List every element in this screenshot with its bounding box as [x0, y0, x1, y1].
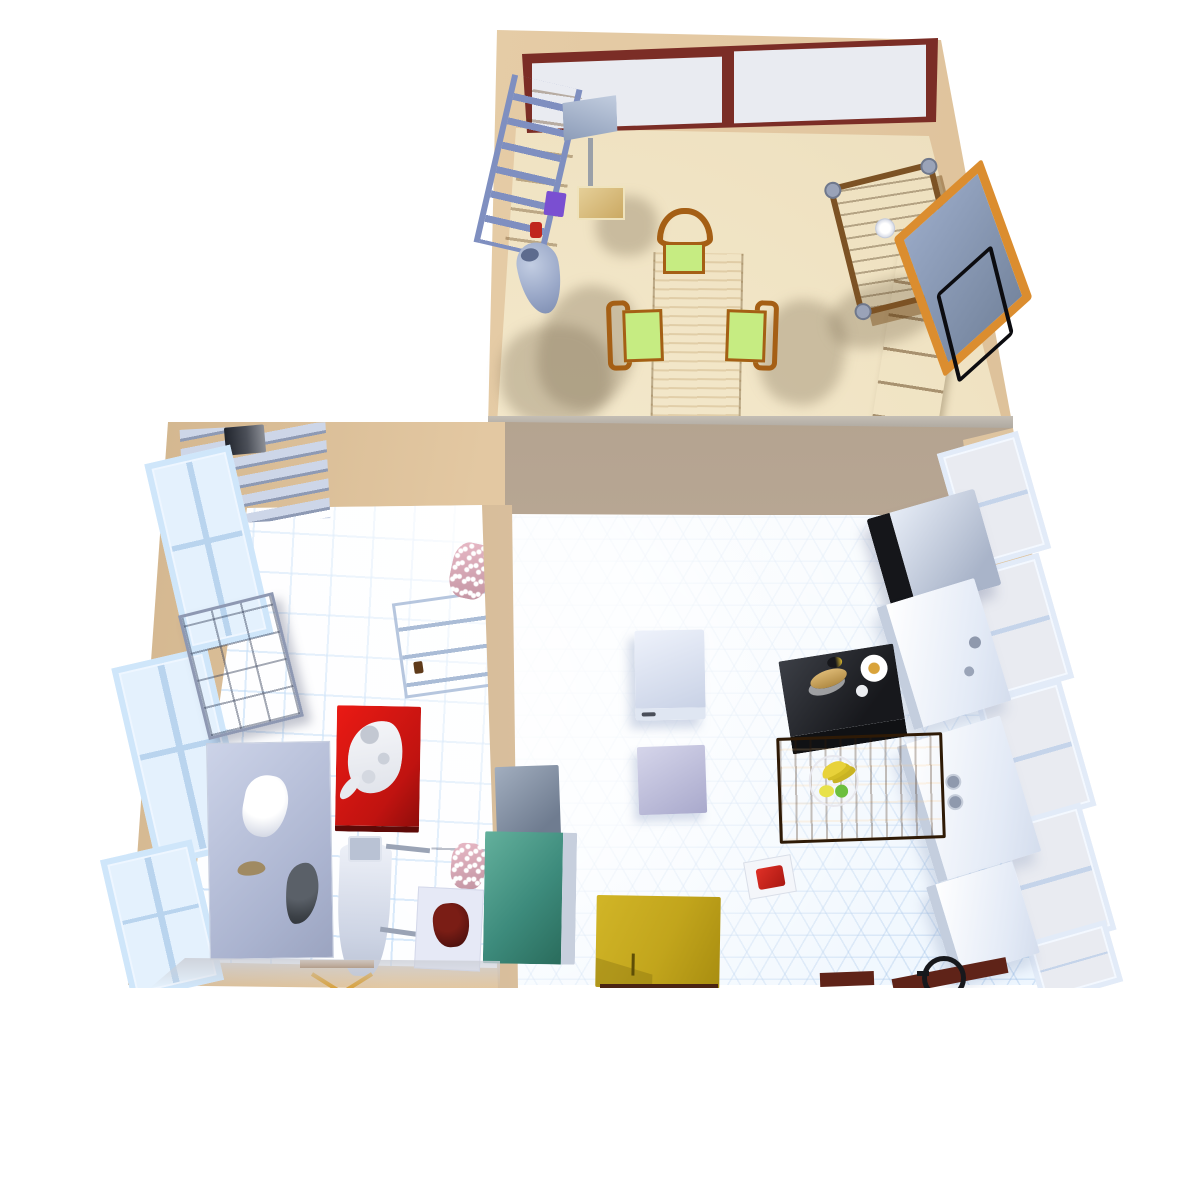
floor-lamp-base — [577, 186, 625, 220]
dining-chair-top[interactable] — [653, 208, 713, 272]
cut-wall-sliver — [150, 958, 500, 988]
stove-knob[interactable] — [943, 772, 963, 792]
table-slot — [631, 954, 634, 976]
red-cloth[interactable] — [755, 865, 785, 890]
towel[interactable] — [238, 771, 293, 840]
latch — [642, 712, 656, 716]
faucet[interactable] — [967, 635, 982, 650]
floor-shadow — [500, 325, 612, 425]
chair-cushion — [725, 309, 767, 362]
chair-cushion — [663, 242, 705, 274]
dining-chair-right[interactable] — [721, 295, 780, 373]
laundry-bag-lower[interactable] — [449, 842, 486, 890]
render-crop-area — [0, 988, 1200, 1200]
chair-cushion — [622, 309, 664, 362]
egg[interactable] — [855, 684, 869, 698]
bananas — [819, 757, 848, 780]
floor-lamp-pole — [588, 138, 593, 192]
wooden-island[interactable] — [776, 732, 946, 844]
kettle-spout — [917, 971, 929, 976]
dishwasher[interactable] — [634, 629, 706, 720]
leather-bag[interactable] — [431, 902, 471, 949]
bread-loaf[interactable] — [808, 664, 849, 692]
small-cap[interactable] — [826, 656, 843, 669]
teal-stove[interactable] — [483, 831, 577, 965]
iron-rest — [348, 836, 382, 862]
clothes-pile[interactable] — [282, 861, 321, 926]
fruit-bowl[interactable] — [808, 754, 860, 808]
cabinet-box[interactable] — [637, 745, 707, 815]
dining-chair-left[interactable] — [606, 295, 665, 373]
work-table[interactable] — [206, 741, 334, 960]
red-side-table[interactable] — [335, 705, 421, 832]
apartment-render — [0, 0, 1200, 1200]
cat-tail — [336, 773, 363, 802]
stove-knob[interactable] — [945, 792, 965, 812]
red-toy[interactable] — [530, 222, 542, 238]
yellow-table[interactable] — [595, 895, 721, 989]
vase-mouth — [520, 247, 540, 263]
cat[interactable] — [342, 715, 409, 798]
window-glass-right — [734, 45, 926, 124]
wine-glass[interactable] — [873, 216, 897, 240]
baseboard-strip — [820, 971, 874, 987]
purple-box[interactable] — [543, 191, 566, 218]
green-apple — [835, 784, 848, 797]
animal-figurine[interactable] — [237, 860, 266, 877]
plate[interactable] — [859, 653, 890, 684]
lemon — [819, 785, 834, 798]
door-handle[interactable] — [413, 661, 424, 674]
side-stand[interactable] — [414, 886, 484, 971]
